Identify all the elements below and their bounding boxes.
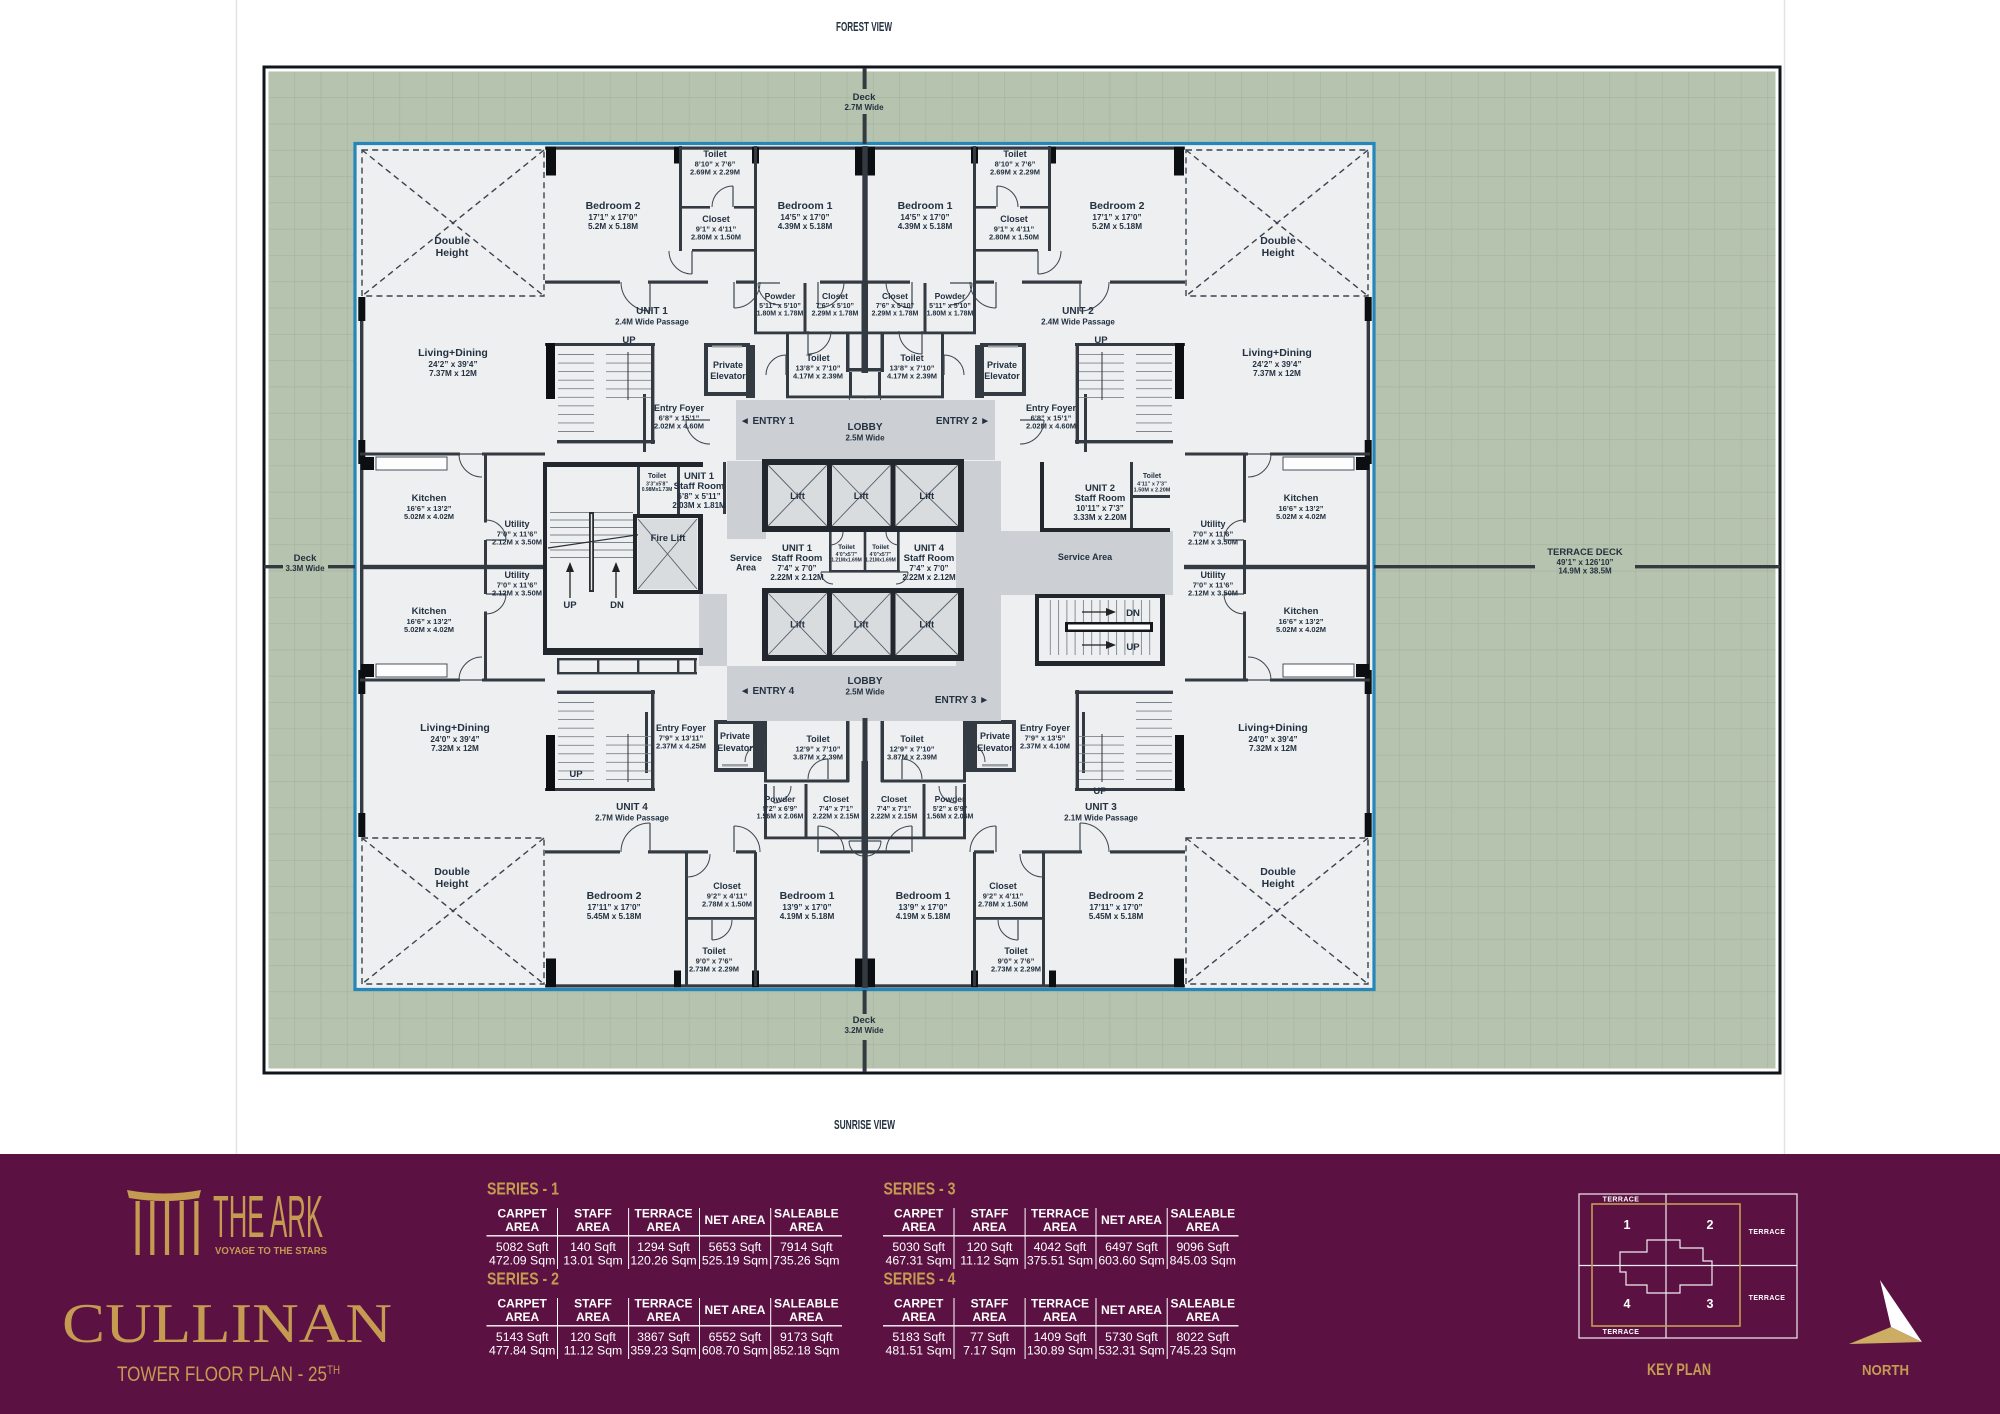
svg-text:CULLINAN: CULLINAN [62, 1293, 392, 1355]
svg-text:1409 Sqft: 1409 Sqft [1034, 1330, 1087, 1344]
svg-text:Entry Foyer6’8” x 15’1”2.02M x: Entry Foyer6’8” x 15’1”2.02M x 4.60M [1026, 403, 1077, 431]
svg-text:STAFF: STAFF [574, 1207, 612, 1221]
svg-text:Private: Private [987, 360, 1017, 370]
svg-text:AREA: AREA [972, 1220, 1006, 1234]
svg-text:Elevator: Elevator [717, 743, 753, 753]
svg-text:LOBBY2.5M Wide: LOBBY2.5M Wide [845, 676, 885, 697]
svg-text:CARPET: CARPET [894, 1207, 944, 1221]
svg-text:481.51 Sqm: 481.51 Sqm [886, 1343, 952, 1357]
svg-text:AREA: AREA [789, 1220, 823, 1234]
svg-text:DN: DN [1126, 608, 1140, 619]
svg-text:CARPET: CARPET [894, 1297, 944, 1311]
svg-text:Service Area: Service Area [1058, 552, 1113, 562]
svg-text:Height: Height [1262, 247, 1295, 259]
svg-text:AREA: AREA [505, 1220, 539, 1234]
svg-text:ENTRY 2 ►: ENTRY 2 ► [936, 416, 990, 427]
svg-text:1294 Sqft: 1294 Sqft [637, 1240, 690, 1254]
svg-text:375.51 Sqm: 375.51 Sqm [1027, 1253, 1093, 1267]
svg-text:Lift: Lift [790, 491, 806, 502]
svg-text:359.23 Sqm: 359.23 Sqm [630, 1343, 696, 1357]
svg-text:AREA: AREA [576, 1220, 610, 1234]
svg-text:UP: UP [1094, 335, 1108, 346]
svg-text:5143 Sqft: 5143 Sqft [496, 1330, 549, 1344]
svg-text:852.18 Sqm: 852.18 Sqm [773, 1343, 839, 1357]
svg-text:9173 Sqft: 9173 Sqft [780, 1330, 833, 1344]
svg-text:77 Sqft: 77 Sqft [970, 1330, 1010, 1344]
svg-text:UP: UP [569, 769, 583, 780]
svg-text:5653 Sqft: 5653 Sqft [709, 1240, 762, 1254]
svg-text:7.17 Sqm: 7.17 Sqm [963, 1343, 1016, 1357]
svg-text:Bedroom 113’9” x 17’0”4.19M x: Bedroom 113’9” x 17’0”4.19M x 5.18M [896, 890, 951, 921]
svg-text:TERRACE: TERRACE [1603, 1197, 1640, 1204]
svg-text:UP: UP [563, 600, 577, 611]
svg-text:AREA: AREA [646, 1220, 680, 1234]
svg-text:Elevator: Elevator [710, 371, 746, 381]
svg-text:Double: Double [434, 866, 470, 878]
svg-text:THE ARK: THE ARK [213, 1184, 323, 1250]
svg-text:AREA: AREA [972, 1310, 1006, 1324]
svg-text:Bedroom 217’11” x 17’0”5.45M x: Bedroom 217’11” x 17’0”5.45M x 5.18M [1089, 890, 1144, 921]
svg-text:SALEABLE: SALEABLE [774, 1297, 839, 1311]
svg-text:8022 Sqft: 8022 Sqft [1176, 1330, 1229, 1344]
svg-text:TOWER FLOOR PLAN - 25TH: TOWER FLOOR PLAN - 25TH [117, 1363, 340, 1386]
svg-text:467.31 Sqm: 467.31 Sqm [886, 1253, 952, 1267]
svg-text:AREA: AREA [1186, 1310, 1220, 1324]
svg-text:SALEABLE: SALEABLE [1170, 1297, 1235, 1311]
svg-text:120 Sqft: 120 Sqft [967, 1240, 1013, 1254]
svg-text:477.84 Sqm: 477.84 Sqm [489, 1343, 555, 1357]
svg-text:UP: UP [1093, 786, 1107, 797]
svg-text:3: 3 [1707, 1297, 1714, 1311]
svg-text:603.60 Sqm: 603.60 Sqm [1098, 1253, 1164, 1267]
svg-text:AREA: AREA [1043, 1310, 1077, 1324]
svg-text:6497 Sqft: 6497 Sqft [1105, 1240, 1158, 1254]
svg-text:Height: Height [1262, 878, 1295, 890]
svg-text:Bedroom 113’9” x 17’0”4.19M x: Bedroom 113’9” x 17’0”4.19M x 5.18M [780, 890, 835, 921]
svg-text:NET AREA: NET AREA [1101, 1303, 1162, 1317]
svg-text:TERRACE: TERRACE [634, 1297, 692, 1311]
svg-text:TERRACE: TERRACE [1031, 1207, 1089, 1221]
svg-text:TERRACE: TERRACE [1603, 1329, 1640, 1336]
svg-text:FOREST VIEW: FOREST VIEW [836, 20, 892, 34]
svg-text:Bedroom 114’5” x 17’0”4.39M x: Bedroom 114’5” x 17’0”4.39M x 5.18M [778, 200, 833, 231]
svg-text:Lift: Lift [919, 620, 935, 631]
svg-text:TERRACE DECK49’1” x 126’10”14.: TERRACE DECK49’1” x 126’10”14.9M x 38.5M [1547, 547, 1623, 576]
svg-text:Elevator: Elevator [977, 743, 1013, 753]
svg-text:SALEABLE: SALEABLE [774, 1207, 839, 1221]
svg-text:NET AREA: NET AREA [1101, 1213, 1162, 1227]
svg-text:AREA: AREA [1186, 1220, 1220, 1234]
svg-text:SERIES - 1: SERIES - 1 [487, 1179, 559, 1199]
svg-text:STAFF: STAFF [971, 1207, 1009, 1221]
svg-text:9096 Sqft: 9096 Sqft [1176, 1240, 1229, 1254]
svg-text:AREA: AREA [576, 1310, 610, 1324]
svg-text:Lift: Lift [854, 620, 870, 631]
svg-text:SALEABLE: SALEABLE [1170, 1207, 1235, 1221]
svg-text:472.09 Sqm: 472.09 Sqm [489, 1253, 555, 1267]
svg-text:5082 Sqft: 5082 Sqft [496, 1240, 549, 1254]
svg-text:13.01 Sqm: 13.01 Sqm [563, 1253, 622, 1267]
svg-text:AREA: AREA [646, 1310, 680, 1324]
svg-text:Lift: Lift [919, 491, 935, 502]
svg-text:TERRACE: TERRACE [1749, 1229, 1786, 1236]
svg-text:VOYAGE TO THE STARS: VOYAGE TO THE STARS [215, 1245, 327, 1257]
svg-text:STAFF: STAFF [971, 1297, 1009, 1311]
svg-text:SERIES - 2: SERIES - 2 [487, 1269, 559, 1289]
svg-text:Private: Private [720, 731, 750, 741]
svg-text:Lift: Lift [854, 491, 870, 502]
svg-text:STAFF: STAFF [574, 1297, 612, 1311]
svg-text:TERRACE: TERRACE [1031, 1297, 1089, 1311]
svg-text:140 Sqft: 140 Sqft [570, 1240, 616, 1254]
svg-text:845.03 Sqm: 845.03 Sqm [1170, 1253, 1236, 1267]
svg-text:5183 Sqft: 5183 Sqft [892, 1330, 945, 1344]
svg-text:AREA: AREA [505, 1310, 539, 1324]
svg-text:4042 Sqft: 4042 Sqft [1034, 1240, 1087, 1254]
svg-text:Height: Height [436, 878, 469, 890]
svg-text:◄ ENTRY 1: ◄ ENTRY 1 [740, 416, 795, 427]
svg-text:130.89 Sqm: 130.89 Sqm [1027, 1343, 1093, 1357]
svg-text:NET AREA: NET AREA [705, 1303, 766, 1317]
svg-text:NET AREA: NET AREA [705, 1213, 766, 1227]
svg-text:DN: DN [610, 600, 624, 611]
svg-text:KEY PLAN: KEY PLAN [1647, 1360, 1711, 1379]
svg-text:Double: Double [1260, 866, 1296, 878]
svg-text:TERRACE: TERRACE [1749, 1295, 1786, 1302]
svg-text:2: 2 [1707, 1218, 1714, 1232]
svg-text:◄ ENTRY 4: ◄ ENTRY 4 [740, 686, 795, 697]
svg-text:AREA: AREA [902, 1220, 936, 1234]
svg-text:7914 Sqft: 7914 Sqft [780, 1240, 833, 1254]
svg-text:735.26 Sqm: 735.26 Sqm [773, 1253, 839, 1267]
svg-text:5730 Sqft: 5730 Sqft [1105, 1330, 1158, 1344]
svg-text:120.26 Sqm: 120.26 Sqm [630, 1253, 696, 1267]
svg-text:Bedroom 217’1” x 17’0”5.2M x 5: Bedroom 217’1” x 17’0”5.2M x 5.18M [586, 200, 641, 231]
svg-text:1: 1 [1624, 1218, 1631, 1232]
svg-text:CARPET: CARPET [498, 1207, 548, 1221]
svg-text:TERRACE: TERRACE [634, 1207, 692, 1221]
svg-text:SERIES - 4: SERIES - 4 [884, 1269, 956, 1289]
svg-text:Bedroom 217’11” x 17’0”5.45M x: Bedroom 217’11” x 17’0”5.45M x 5.18M [587, 890, 642, 921]
svg-text:120 Sqft: 120 Sqft [570, 1330, 616, 1344]
svg-text:AREA: AREA [902, 1310, 936, 1324]
svg-text:Entry Foyer7’9” x 13’5”2.37M x: Entry Foyer7’9” x 13’5”2.37M x 4.10M [1020, 723, 1071, 751]
svg-text:UP: UP [1126, 642, 1140, 653]
svg-text:Elevator: Elevator [984, 371, 1020, 381]
svg-text:11.12 Sqm: 11.12 Sqm [960, 1253, 1019, 1267]
svg-text:AREA: AREA [789, 1310, 823, 1324]
svg-text:6552 Sqft: 6552 Sqft [709, 1330, 762, 1344]
svg-text:5030 Sqft: 5030 Sqft [892, 1240, 945, 1254]
svg-text:Fire Lift: Fire Lift [651, 533, 687, 544]
svg-text:SERIES - 3: SERIES - 3 [884, 1179, 956, 1199]
svg-text:Private: Private [713, 360, 743, 370]
svg-text:Entry Foyer7’9” x 13’11”2.37M: Entry Foyer7’9” x 13’11”2.37M x 4.25M [656, 723, 707, 751]
svg-text:Height: Height [436, 247, 469, 259]
svg-text:Bedroom 114’5” x 17’0”4.39M x: Bedroom 114’5” x 17’0”4.39M x 5.18M [898, 200, 953, 231]
svg-text:745.23 Sqm: 745.23 Sqm [1170, 1343, 1236, 1357]
svg-text:LOBBY2.5M Wide: LOBBY2.5M Wide [845, 422, 885, 443]
svg-text:608.70 Sqm: 608.70 Sqm [702, 1343, 768, 1357]
svg-text:SUNRISE VIEW: SUNRISE VIEW [834, 1118, 895, 1132]
svg-text:Private: Private [980, 731, 1010, 741]
svg-text:Lift: Lift [790, 620, 806, 631]
svg-text:4: 4 [1624, 1297, 1631, 1311]
svg-text:11.12 Sqm: 11.12 Sqm [564, 1343, 623, 1357]
svg-text:Double: Double [434, 235, 470, 247]
svg-text:532.31 Sqm: 532.31 Sqm [1098, 1343, 1164, 1357]
svg-text:Bedroom 217’1” x 17’0”5.2M x 5: Bedroom 217’1” x 17’0”5.2M x 5.18M [1090, 200, 1145, 231]
svg-text:Double: Double [1260, 235, 1296, 247]
svg-text:3867 Sqft: 3867 Sqft [637, 1330, 690, 1344]
svg-text:ENTRY 3 ►: ENTRY 3 ► [935, 695, 989, 706]
svg-text:AREA: AREA [1043, 1220, 1077, 1234]
svg-text:Entry Foyer6’8” x 15’1”2.02M x: Entry Foyer6’8” x 15’1”2.02M x 4.60M [654, 403, 705, 431]
svg-text:NORTH: NORTH [1862, 1362, 1909, 1379]
svg-text:525.19 Sqm: 525.19 Sqm [702, 1253, 768, 1267]
svg-text:UP: UP [622, 335, 636, 346]
svg-text:CARPET: CARPET [498, 1297, 548, 1311]
